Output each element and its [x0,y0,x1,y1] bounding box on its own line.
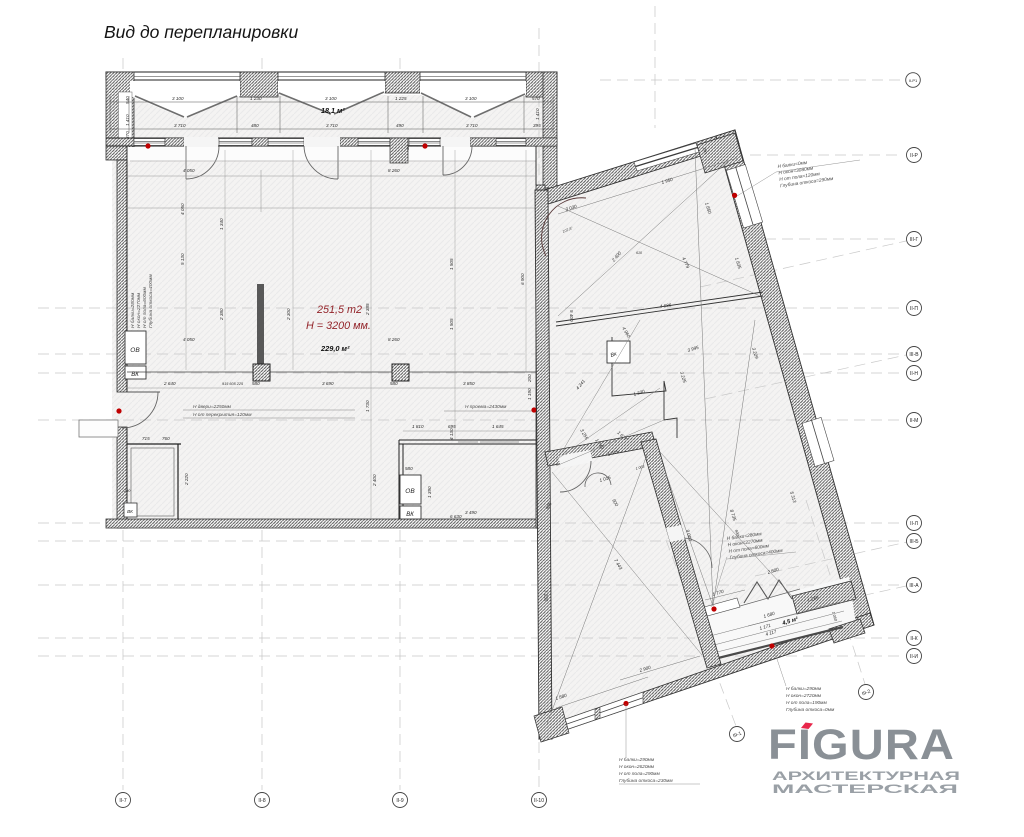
svg-text:7 230: 7 230 [543,590,549,602]
svg-text:II-Р1: II-Р1 [909,78,918,83]
svg-text:Н двери=2250мм: Н двери=2250мм [193,404,232,410]
svg-text:6 900: 6 900 [520,273,525,285]
svg-text:1 810: 1 810 [412,424,424,429]
svg-text:Н балки=290мм: Н балки=290мм [786,686,822,692]
svg-text:3 710: 3 710 [466,123,478,128]
svg-text:II-7: II-7 [119,798,126,804]
svg-text:3 710: 3 710 [174,123,186,128]
svg-text:760: 760 [162,436,170,441]
svg-text:2 300: 2 300 [286,308,291,321]
svg-text:1 230: 1 230 [250,96,262,101]
svg-text:1 645: 1 645 [492,424,504,429]
svg-text:II-М: II-М [910,418,919,424]
svg-text:II-И: II-И [910,654,918,660]
svg-text:3 710: 3 710 [326,123,338,128]
svg-text:Н балки=290мм: Н балки=290мм [619,757,655,763]
svg-text:580: 580 [390,381,398,386]
svg-text:H = 3200 мм.: H = 3200 мм. [306,320,371,332]
svg-text:II-8: II-8 [258,798,265,804]
svg-text:3 490: 3 490 [465,510,477,515]
svg-text:610: 610 [636,251,642,255]
svg-text:1 505: 1 505 [449,318,454,330]
svg-text:715: 715 [142,436,150,441]
svg-text:8 260: 8 260 [388,168,400,173]
svg-text:540: 540 [125,96,130,104]
svg-text:229,0 м²: 229,0 м² [320,344,350,353]
svg-text:ОВ: ОВ [130,347,140,354]
svg-text:II-Л: II-Л [910,521,918,527]
svg-text:II-10: II-10 [534,798,544,804]
svg-text:Глубина откоса=0мм: Глубина откоса=0мм [786,707,835,713]
svg-text:915 605 225: 915 605 225 [222,382,244,386]
svg-text:II-П: II-П [910,306,918,312]
svg-text:4 130: 4 130 [449,428,454,440]
svg-text:395: 395 [533,123,541,128]
svg-text:6 630: 6 630 [450,514,462,519]
svg-text:III-Г: III-Г [910,237,919,243]
svg-text:370: 370 [125,131,130,139]
svg-text:II-Р: II-Р [910,153,918,159]
svg-text:200: 200 [527,374,532,383]
svg-text:Глубина откоса=400мм: Глубина откоса=400мм [148,274,154,328]
svg-text:580: 580 [405,466,413,471]
svg-text:3 850: 3 850 [463,381,475,386]
svg-text:4 050: 4 050 [183,337,195,342]
svg-text:580: 580 [252,381,260,386]
svg-text:4 050: 4 050 [183,168,195,173]
svg-text:1 410: 1 410 [535,108,540,120]
svg-text:Глубина откоса=230мм: Глубина откоса=230мм [619,778,673,784]
svg-text:3 690: 3 690 [322,381,334,386]
svg-text:2 640: 2 640 [163,381,176,386]
svg-text:Вид до перепланировки: Вид до перепланировки [104,22,298,42]
svg-text:Н балки=280мм: Н балки=280мм [130,292,136,328]
svg-text:Н проема=2430мм: Н проема=2430мм [465,404,507,410]
svg-text:3 100: 3 100 [325,96,337,101]
svg-text:МАСТЕРСКАЯ: МАСТЕРСКАЯ [772,782,958,796]
svg-text:8 260: 8 260 [388,337,400,342]
svg-text:II-К: II-К [910,636,917,642]
svg-text:290: 290 [123,489,131,493]
svg-text:ВК: ВК [127,509,133,514]
svg-text:Н окон=2720мм: Н окон=2720мм [786,693,822,699]
svg-text:Н окон=2270мм: Н окон=2270мм [136,292,142,328]
svg-text:2 380: 2 380 [219,308,224,321]
svg-text:1 190: 1 190 [527,388,532,400]
svg-text:ВК: ВК [406,512,414,518]
svg-text:II-9: II-9 [396,798,403,804]
svg-text:5 400: 5 400 [569,310,574,322]
svg-text:Н от пола=190мм: Н от пола=190мм [786,700,827,706]
svg-text:2 385: 2 385 [365,303,370,316]
svg-text:251,5 m2: 251,5 m2 [316,304,362,316]
svg-text:80: 80 [405,145,410,150]
svg-text:695: 695 [448,424,456,429]
svg-text:ОВ: ОВ [405,488,415,495]
svg-text:III-А: III-А [909,583,919,589]
svg-text:FIGURA: FIGURA [768,721,955,769]
svg-text:Н от пола=290мм: Н от пола=290мм [619,771,660,777]
svg-text:1 410: 1 410 [125,114,130,126]
svg-text:4 050: 4 050 [180,203,185,215]
svg-text:5 130: 5 130 [180,253,185,265]
svg-text:Н от перекрытия=120мм: Н от перекрытия=120мм [193,412,252,418]
svg-text:570: 570 [532,96,540,101]
svg-text:18,1 м²: 18,1 м² [321,106,345,115]
svg-text:2 220: 2 220 [184,473,189,486]
svg-text:III-Б: III-Б [909,539,919,545]
svg-text:1 390: 1 390 [427,486,432,498]
svg-text:Н от пола=600мм: Н от пола=600мм [142,287,148,328]
svg-text:Н окон=2620мм: Н окон=2620мм [619,764,655,770]
svg-text:1 225: 1 225 [395,96,407,101]
svg-text:ВК: ВК [131,372,139,378]
svg-text:490: 490 [396,123,404,128]
svg-text:480: 480 [251,123,259,128]
svg-text:3 100: 3 100 [465,96,477,101]
svg-text:1 340: 1 340 [219,218,224,230]
svg-text:3 100: 3 100 [172,96,184,101]
svg-text:АРХИТЕКТУРНАЯ: АРХИТЕКТУРНАЯ [772,769,960,783]
svg-text:1 730: 1 730 [365,400,370,412]
svg-text:III-В: III-В [909,352,919,358]
svg-text:1 505: 1 505 [449,258,454,270]
svg-text:2 400: 2 400 [372,474,377,487]
svg-text:II-Н: II-Н [910,371,918,377]
